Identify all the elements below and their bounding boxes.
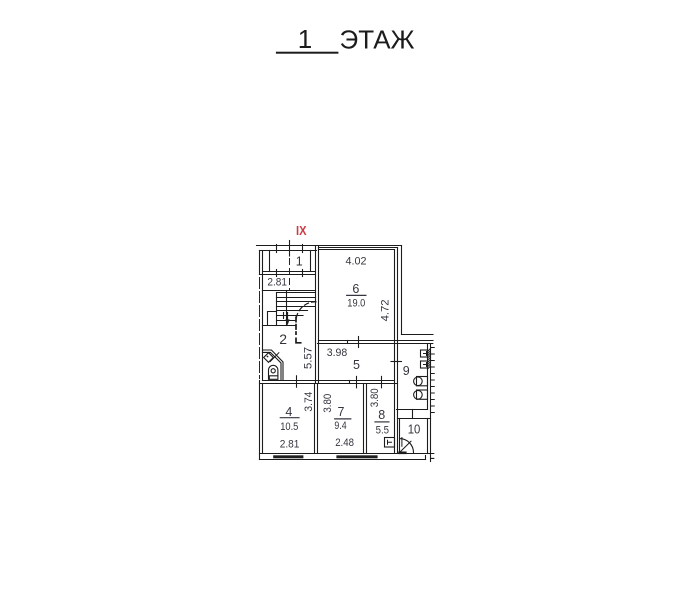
svg-text:1: 1	[298, 24, 312, 54]
svg-text:4.02: 4.02	[346, 255, 367, 267]
svg-text:3.98: 3.98	[327, 347, 348, 359]
svg-text:19.0: 19.0	[347, 298, 365, 310]
svg-text:2.81: 2.81	[280, 439, 300, 451]
svg-text:IX: IX	[296, 224, 307, 238]
svg-text:7: 7	[338, 405, 345, 419]
svg-text:2.48: 2.48	[335, 437, 354, 449]
svg-text:9: 9	[403, 364, 410, 378]
svg-text:10: 10	[408, 422, 421, 436]
svg-text:ЭТАЖ: ЭТАЖ	[340, 25, 415, 55]
svg-text:1: 1	[296, 254, 303, 268]
svg-text:6: 6	[352, 282, 359, 296]
svg-text:3.74: 3.74	[303, 392, 315, 412]
svg-text:8: 8	[378, 408, 385, 422]
svg-text:2: 2	[279, 331, 287, 347]
svg-text:10.5: 10.5	[280, 421, 298, 433]
svg-text:3.80: 3.80	[322, 394, 334, 413]
svg-text:4.72: 4.72	[380, 299, 392, 321]
svg-text:9.4: 9.4	[334, 420, 346, 432]
svg-text:4: 4	[285, 405, 292, 419]
svg-text:2.81: 2.81	[267, 276, 287, 288]
svg-text:5: 5	[353, 358, 360, 372]
svg-text:5.5: 5.5	[376, 424, 389, 436]
svg-text:3.80: 3.80	[369, 388, 381, 407]
svg-text:5.57: 5.57	[303, 347, 315, 369]
